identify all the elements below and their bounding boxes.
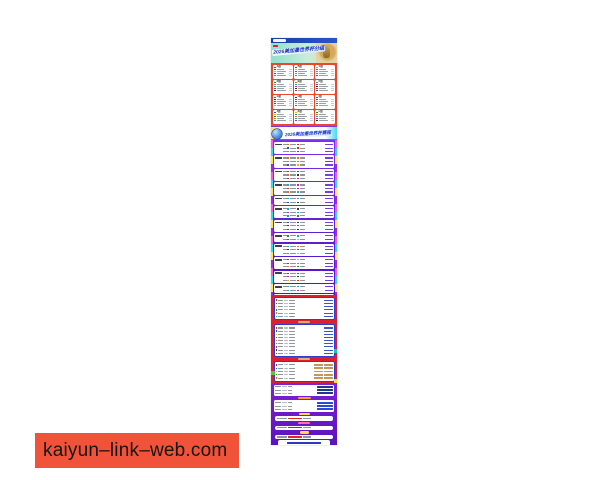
poster-logo [273, 39, 286, 42]
text-bar [277, 75, 286, 76]
schedule-title-banner: 2026美加墨世界杯赛程 [271, 126, 337, 140]
flag-icon [276, 353, 278, 354]
date-chip [275, 171, 282, 173]
flag-icon [276, 364, 278, 365]
date-chip [275, 208, 282, 210]
flag-icon [297, 208, 299, 209]
text-bar [290, 246, 296, 247]
match-group-panel [274, 284, 334, 293]
team-row [316, 105, 334, 106]
value-block [317, 386, 333, 388]
flag-icon [316, 82, 318, 83]
text-bar [283, 188, 287, 189]
text-bar [284, 334, 288, 335]
text-bar [283, 174, 287, 175]
text-bar [289, 316, 295, 317]
flag-icon [287, 212, 289, 213]
flag-icon [297, 249, 299, 250]
venue-bar [324, 313, 333, 314]
match-row [275, 208, 333, 210]
text-bar [278, 306, 283, 307]
match-row [275, 252, 333, 254]
venue-bar [324, 316, 333, 317]
text-bar [319, 105, 328, 106]
flag-icon [276, 371, 278, 372]
section-label-pill [299, 413, 310, 415]
flag-icon [274, 90, 276, 91]
venue-bar [325, 225, 333, 226]
knockout-row [276, 336, 333, 338]
date-chip [275, 157, 282, 159]
flag-icon [297, 266, 299, 267]
date-chip [275, 266, 282, 268]
world-cup-poster-image[interactable]: 2026美加墨世界杯分组 A组B组C组D组E组F组G组H组I组J组K组L组 20… [271, 38, 337, 445]
flag-icon [276, 337, 278, 338]
value-block [317, 392, 333, 394]
text-bar [300, 276, 305, 277]
team-stat-bar [331, 120, 334, 121]
flag-icon [287, 235, 289, 236]
flag-icon [287, 249, 289, 250]
footer-rows-panel [274, 400, 334, 411]
flag-icon [287, 225, 289, 226]
flag-icon [274, 82, 276, 83]
text-bar [288, 409, 292, 410]
venue-bar [325, 276, 333, 277]
watermark-banner: kaiyun–link–web.com [35, 433, 239, 468]
flag-icon [297, 276, 299, 277]
venue-bar [324, 340, 333, 341]
text-bar [283, 263, 287, 264]
text-bar [290, 148, 296, 149]
team-row [295, 90, 313, 91]
team-row [295, 105, 313, 106]
venue-bar [325, 259, 333, 260]
text-bar [290, 249, 296, 250]
info-bar [275, 435, 333, 440]
text-bar [278, 353, 283, 354]
text-bar [300, 148, 305, 149]
venue-bar [325, 178, 333, 179]
date-chip [275, 239, 282, 241]
venue-bar [324, 327, 333, 328]
match-row [275, 174, 333, 176]
text-bar [282, 386, 287, 387]
venue-bar [325, 266, 333, 267]
text-bar [283, 280, 287, 281]
match-row [275, 187, 333, 189]
team-stat-bar [310, 90, 313, 91]
left-color-strip [271, 140, 273, 295]
section-label-pill [298, 422, 310, 424]
venue-bar [324, 337, 333, 338]
text-bar [300, 280, 305, 281]
text-bar [278, 371, 283, 372]
team-stat-bar [289, 120, 292, 121]
date-chip [275, 144, 282, 146]
flag-icon [297, 212, 299, 213]
text-bar [283, 273, 287, 274]
flag-icon [276, 330, 278, 331]
result-cell [324, 371, 333, 373]
text-bar [298, 90, 307, 91]
venue-bar [325, 161, 333, 162]
match-row [275, 151, 333, 153]
text-bar [300, 246, 305, 247]
knockout-row [276, 370, 333, 372]
venue-bar [325, 253, 333, 254]
flag-icon [297, 151, 299, 152]
text-bar [289, 309, 295, 310]
text-bar [288, 418, 302, 419]
flag-icon [316, 97, 318, 98]
match-row [275, 279, 333, 281]
flag-icon [316, 90, 318, 91]
text-bar [300, 259, 305, 260]
flag-icon [297, 144, 299, 145]
result-cell [324, 367, 333, 369]
text-bar [300, 198, 305, 199]
match-row [275, 164, 333, 166]
flag-icon [316, 75, 318, 76]
knockout-panel [274, 324, 335, 357]
text-bar [303, 427, 311, 428]
text-bar [300, 229, 305, 230]
team-row [274, 105, 292, 106]
date-chip [275, 198, 282, 200]
text-bar [289, 364, 295, 365]
date-chip [275, 249, 282, 251]
footer-row [275, 389, 333, 391]
flag-icon [295, 75, 297, 76]
match-group-panel [274, 220, 334, 232]
watermark-text: kaiyun–link–web.com [35, 440, 227, 462]
text-bar [290, 273, 296, 274]
text-bar [300, 164, 305, 165]
text-bar [300, 253, 305, 254]
text-bar [277, 120, 286, 121]
venue-bar [324, 350, 333, 351]
flag-icon [274, 75, 276, 76]
flag-icon [297, 191, 299, 192]
flag-icon [297, 222, 299, 223]
section-label-pill [300, 431, 309, 433]
match-group-panel [274, 169, 334, 181]
flag-icon [297, 225, 299, 226]
text-bar [283, 164, 287, 165]
stage-label-pill [298, 358, 310, 360]
match-group-panel [274, 271, 334, 283]
venue-bar [325, 286, 333, 287]
knockout-row [276, 364, 333, 366]
flag-icon [287, 157, 289, 158]
flag-icon [287, 280, 289, 281]
schedule-table [271, 140, 337, 295]
text-bar [283, 249, 287, 250]
flag-icon [297, 215, 299, 216]
group-cell: J组 [273, 110, 293, 124]
text-bar [303, 418, 311, 419]
text-bar [277, 436, 287, 437]
text-bar [275, 390, 281, 391]
result-cell [314, 377, 323, 379]
poster-schedule-title: 2026美加墨世界杯赛程 [284, 130, 332, 139]
date-chip [275, 235, 282, 237]
venue-bar [325, 235, 333, 236]
text-bar [290, 286, 296, 287]
text-bar [319, 90, 328, 91]
poster-hero: 2026美加墨世界杯分组 [271, 43, 337, 63]
knockout-panel [274, 297, 335, 321]
text-bar [290, 239, 296, 240]
match-row [275, 221, 333, 223]
text-bar [288, 406, 292, 407]
text-bar [278, 327, 283, 328]
text-bar [289, 346, 295, 347]
flag-icon [287, 151, 289, 152]
poster-footer-section [271, 383, 337, 445]
text-bar [283, 144, 287, 145]
date-chip [275, 272, 282, 274]
text-bar [283, 215, 287, 216]
text-bar [289, 350, 295, 351]
team-row [274, 120, 292, 121]
date-chip [275, 212, 282, 214]
text-bar [284, 353, 288, 354]
team-stat-bar [331, 75, 334, 76]
flag-icon [287, 208, 289, 209]
text-bar [278, 378, 283, 379]
venue-bar [325, 191, 333, 192]
flag-icon [287, 290, 289, 291]
flag-icon [276, 346, 278, 347]
text-bar [290, 280, 296, 281]
match-row [275, 211, 333, 213]
flag-icon [276, 306, 278, 307]
flag-icon [287, 263, 289, 264]
flag-icon [297, 161, 299, 162]
venue-bar [325, 212, 333, 213]
venue-bar [325, 174, 333, 175]
team-stat-bar [289, 105, 292, 106]
text-bar [284, 313, 288, 314]
text-bar [278, 340, 283, 341]
footer-row [275, 386, 333, 388]
text-bar [278, 331, 283, 332]
text-bar [289, 340, 295, 341]
result-cell [314, 367, 323, 369]
date-chip [275, 252, 282, 254]
text-bar [290, 276, 296, 277]
text-bar [300, 286, 305, 287]
text-bar [284, 331, 288, 332]
text-bar [300, 225, 305, 226]
flag-icon [297, 202, 299, 203]
group-cell: H组 [294, 95, 314, 109]
text-bar [284, 350, 288, 351]
match-group-panel [274, 142, 334, 154]
result-cell [324, 364, 333, 366]
flag-icon [297, 164, 299, 165]
knockout-row [276, 343, 333, 345]
text-bar [283, 246, 287, 247]
match-row [275, 235, 333, 237]
flag-icon [274, 112, 276, 113]
text-bar [290, 215, 296, 216]
text-bar [300, 188, 305, 189]
text-bar [284, 340, 288, 341]
date-chip [275, 174, 282, 176]
flag-icon [295, 120, 297, 121]
text-bar [283, 151, 287, 152]
date-chip [275, 222, 282, 224]
knockout-row [276, 312, 333, 314]
corner-accent [334, 379, 338, 383]
text-bar [277, 105, 286, 106]
value-block [317, 405, 333, 407]
match-row [275, 266, 333, 268]
text-bar [284, 300, 288, 301]
text-bar [283, 276, 287, 277]
text-bar [278, 303, 283, 304]
text-bar [277, 90, 286, 91]
text-bar [300, 144, 305, 145]
text-bar [277, 427, 287, 428]
venue-bar [325, 148, 333, 149]
flag-icon [276, 374, 278, 375]
knockout-panel [274, 361, 335, 382]
text-bar [290, 222, 296, 223]
match-row [275, 272, 333, 274]
team-stat-bar [331, 90, 334, 91]
text-bar [300, 215, 305, 216]
flag-icon [297, 259, 299, 260]
hero-red-tag [273, 45, 278, 47]
text-bar [300, 151, 305, 152]
text-bar [289, 313, 295, 314]
text-bar [288, 402, 292, 403]
text-bar [300, 202, 305, 203]
flag-icon [287, 178, 289, 179]
date-chip [275, 151, 282, 153]
text-bar [288, 427, 302, 428]
knockout-row [276, 309, 333, 311]
text-bar [290, 253, 296, 254]
knockout-row [276, 299, 333, 301]
group-cell: C组 [315, 65, 335, 79]
text-bar [300, 249, 305, 250]
text-bar [283, 178, 287, 179]
date-chip [275, 201, 282, 203]
team-row [295, 120, 313, 121]
text-bar [290, 229, 296, 230]
match-row [275, 157, 333, 159]
text-bar [300, 191, 305, 192]
text-bar [283, 212, 287, 213]
flag-icon [295, 112, 297, 113]
venue-bar [324, 346, 333, 347]
text-bar [300, 212, 305, 213]
flag-icon [287, 215, 289, 216]
value-block [317, 402, 333, 404]
text-bar [284, 316, 288, 317]
venue-bar [325, 222, 333, 223]
team-stat-bar [331, 105, 334, 106]
match-group-panel [274, 206, 334, 218]
text-bar [284, 371, 288, 372]
text-bar [282, 406, 287, 407]
text-bar [284, 378, 288, 379]
text-bar [284, 306, 288, 307]
match-row [275, 177, 333, 179]
text-bar [298, 75, 307, 76]
match-row [275, 262, 333, 264]
flag-icon [287, 239, 289, 240]
flag-icon [276, 312, 278, 313]
group-cell: G组 [273, 95, 293, 109]
knockout-tables [271, 295, 337, 383]
venue-bar [325, 202, 333, 203]
team-row [274, 75, 292, 76]
group-cell: A组 [273, 65, 293, 79]
knockout-row [276, 346, 333, 348]
flag-icon [297, 157, 299, 158]
text-bar [283, 208, 287, 209]
venue-bar [325, 188, 333, 189]
info-bar [275, 416, 333, 421]
text-bar [278, 374, 283, 375]
text-bar [278, 316, 283, 317]
date-chip [275, 161, 282, 163]
flag-icon [297, 263, 299, 264]
result-cell [314, 374, 323, 376]
text-bar [289, 331, 295, 332]
text-bar [288, 386, 292, 387]
group-cell: L组 [315, 110, 335, 124]
venue-bar [324, 309, 333, 310]
flag-icon [295, 67, 297, 68]
match-row [275, 160, 333, 162]
text-bar [290, 212, 296, 213]
knockout-row [276, 374, 333, 376]
text-bar [290, 174, 296, 175]
match-row [275, 144, 333, 146]
date-chip [275, 290, 282, 292]
flag-icon [287, 191, 289, 192]
venue-bar [325, 290, 333, 291]
match-row [275, 170, 333, 172]
venue-bar [324, 343, 333, 344]
flag-icon [276, 340, 278, 341]
team-row [316, 75, 334, 76]
venue-bar [324, 334, 333, 335]
flag-icon [297, 178, 299, 179]
flag-icon [276, 368, 278, 369]
text-bar [289, 327, 295, 328]
match-row [275, 289, 333, 291]
text-bar [283, 161, 287, 162]
venue-bar [324, 353, 333, 354]
footer-rows-panel [274, 385, 334, 396]
date-chip [275, 188, 282, 190]
flag-icon [316, 67, 318, 68]
venue-bar [325, 157, 333, 158]
text-bar [289, 334, 295, 335]
knockout-row [276, 306, 333, 308]
flag-icon [287, 266, 289, 267]
venue-bar [324, 300, 333, 301]
text-bar [300, 222, 305, 223]
